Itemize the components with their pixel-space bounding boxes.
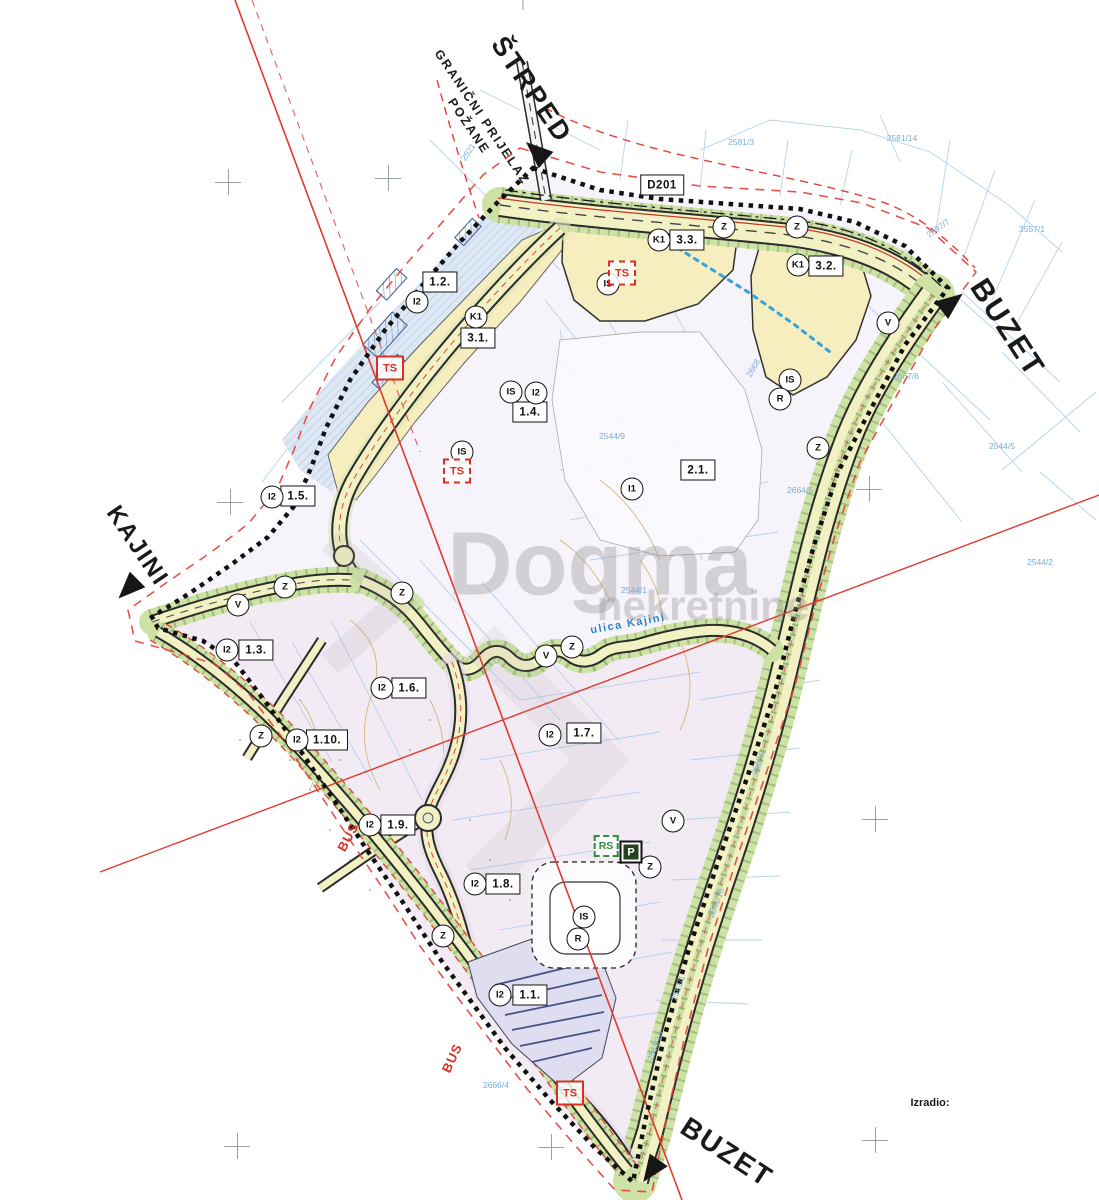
zone-circle-i2-d: I2 [216, 639, 239, 662]
parcel-number: 2544/5 [989, 441, 1015, 451]
zone-circle-z-a: Z [713, 216, 736, 239]
parcel-number: 3557/1 [1019, 224, 1045, 234]
zone-circle-i2-h: I2 [359, 814, 382, 837]
zone-circle-i2-g: I2 [539, 724, 562, 747]
grid-cross-7 [224, 1133, 250, 1159]
zone-circle-v-b: V [227, 594, 250, 617]
zone-box-1-3: 1.3. [238, 640, 273, 661]
zone-circle-z-i: Z [432, 925, 455, 948]
site-plan-map: ŠTRPEDGRANIČNI PRIJELAZ POŽANEBUZETKAJIN… [0, 0, 1099, 1200]
ts-station-north: TS [608, 261, 636, 286]
zone-circle-z-g: Z [250, 725, 273, 748]
zone-box-3-1: 3.1. [460, 328, 495, 349]
zone-circle-i2-i: I2 [464, 873, 487, 896]
zone-circle-z-c: Z [807, 437, 830, 460]
zone-box-2-1: 2.1. [680, 460, 715, 481]
zone-box-1-9: 1.9. [380, 815, 415, 836]
zone-circle-i2-b: I2 [525, 382, 548, 405]
ts-station-south: TS [556, 1081, 584, 1106]
ts-station-mid: TS [443, 459, 471, 484]
label-izradio: Izradio: [910, 1097, 949, 1109]
zone-circle-i2-f: I2 [286, 729, 309, 752]
zone-circle-z-d: Z [274, 576, 297, 599]
zone-box-3-2: 3.2. [808, 256, 843, 277]
zone-circle-k1-c: K1 [787, 254, 810, 277]
zone-circle-k1-b: K1 [648, 229, 671, 252]
zone-circle-k1-a: K1 [465, 306, 488, 329]
roundabout-island [423, 813, 433, 823]
zone-circle-is-e: IS [573, 906, 596, 929]
grid-cross-6 [862, 1127, 888, 1153]
grid-cross-2 [375, 165, 401, 191]
zone-box-1-6: 1.6. [391, 678, 426, 699]
zone-circle-v-c: V [535, 645, 558, 668]
zone-box-1-10: 1.10. [306, 730, 348, 751]
grid-cross-5 [862, 806, 888, 832]
parking-box: P [620, 841, 643, 864]
parcel-number: 2544/2 [1027, 557, 1053, 567]
zone-circle-i2-j: I2 [489, 984, 512, 1007]
zone-box-1-8: 1.8. [485, 874, 520, 895]
zone-circle-z-e: Z [391, 582, 414, 605]
rs-box: RS [594, 835, 619, 857]
zone-box-1-1: 1.1. [512, 985, 547, 1006]
parcel-number: 2667/6 [893, 371, 919, 381]
parcel-number: 2544/1 [621, 585, 647, 595]
zone-circle-i2-c: I2 [261, 486, 284, 509]
ts-station-nw: TS [376, 356, 404, 381]
parcel-number: 2666/4 [483, 1080, 509, 1090]
zone-circle-r-a: R [769, 388, 792, 411]
zone-box-1-4: 1.4. [512, 402, 547, 423]
zone-circle-v-a: V [877, 312, 900, 335]
grid-cross-4 [856, 476, 882, 502]
parcel-number: 2664/5 [787, 485, 813, 495]
zone-circle-i1: I1 [621, 478, 644, 501]
zone-circle-r-b: R [567, 928, 590, 951]
grid-cross-8 [538, 1134, 564, 1160]
parcel-number: 2544/9 [599, 431, 625, 441]
zone-circle-v-d: V [662, 810, 685, 833]
parcel-number: 2581/3 [728, 137, 754, 147]
zone-box-1-5: 1.5. [280, 486, 315, 507]
zone-circle-i2-e: I2 [371, 677, 394, 700]
zone-circle-z-b: Z [786, 216, 809, 239]
grid-cross-3 [217, 489, 243, 515]
road-ref-d201: D201 [640, 175, 684, 196]
zone-box-1-7: 1.7. [566, 723, 601, 744]
zone-circle-i2-a: I2 [406, 291, 429, 314]
zone-circle-is-b: IS [500, 381, 523, 404]
parcel-number: 2581/14 [887, 133, 918, 143]
zone-box-1-2: 1.2. [422, 272, 457, 293]
zone-circle-z-f: Z [561, 636, 584, 659]
grid-cross-1 [215, 169, 241, 195]
zone-box-3-3: 3.3. [669, 230, 704, 251]
